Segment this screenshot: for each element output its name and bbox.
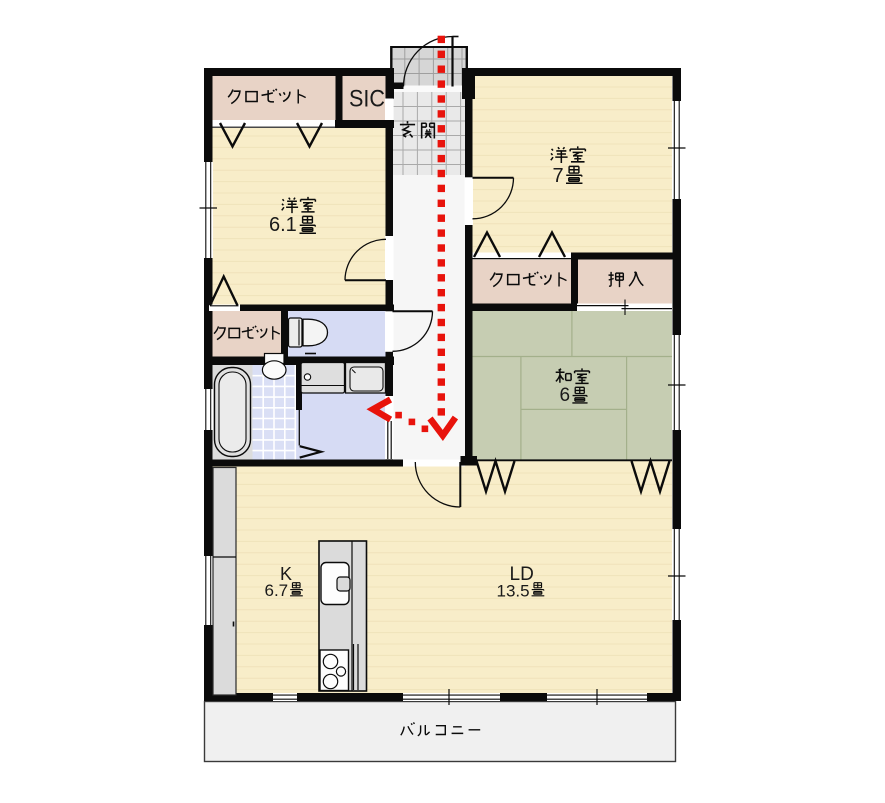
- svg-text:7: 7: [553, 165, 564, 187]
- svg-text:6.1: 6.1: [269, 214, 297, 236]
- svg-text:13.5: 13.5: [497, 582, 530, 601]
- svg-text:SIC: SIC: [349, 86, 385, 113]
- svg-text:6.7: 6.7: [265, 581, 289, 600]
- svg-text:6: 6: [560, 385, 571, 406]
